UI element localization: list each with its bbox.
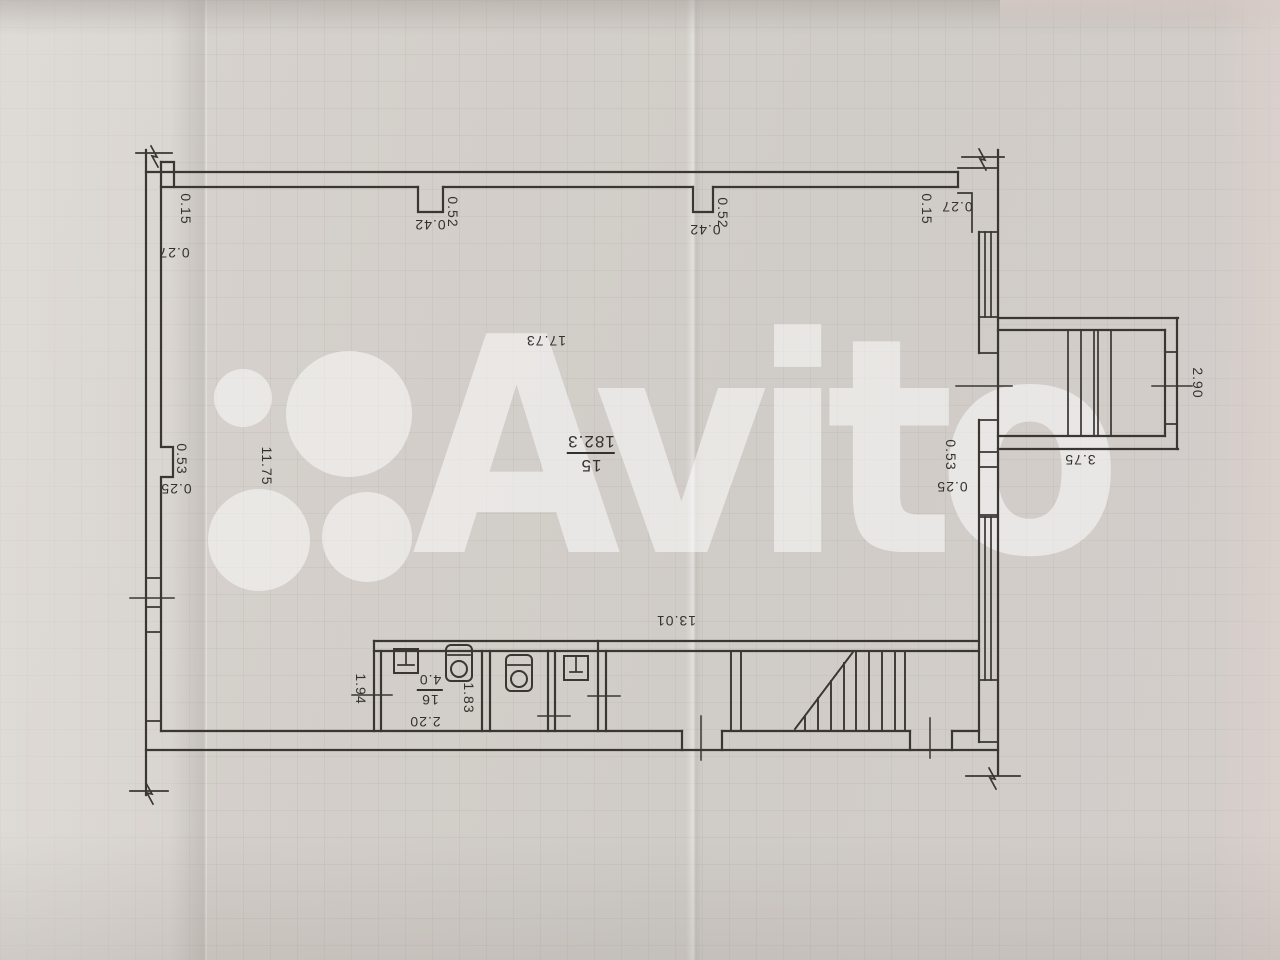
stairwell-annex — [998, 318, 1178, 449]
dim-label-wc-depth: 1.83 — [461, 682, 477, 713]
sink-icon-2 — [564, 656, 588, 680]
room-15-number: 15 — [567, 452, 615, 475]
wall-pilaster-1 — [418, 187, 443, 212]
dim-label-wc-width: 2.20 — [409, 714, 440, 730]
wall-pilaster-2 — [693, 187, 713, 212]
dimension-ticks — [130, 386, 1192, 760]
dim-label-room15-width: 17.73 — [526, 333, 566, 349]
sink-icon-1 — [394, 649, 418, 673]
room-15-area: 182.3 — [567, 431, 615, 452]
room-16-area: 4.0 — [419, 672, 441, 689]
dim-label-right-niche-d: 0.25 — [936, 479, 967, 495]
interior-staircase — [731, 651, 905, 731]
window-lower-right — [985, 517, 991, 680]
dim-label-pilaster1-d: 0.52 — [445, 196, 461, 227]
dim-label-room15-depth: 11.75 — [259, 447, 275, 486]
room-15-label: 15 182.3 — [567, 431, 615, 475]
dim-label-stairwell-d: 2.90 — [1190, 367, 1206, 398]
dim-label-left-top-h: 0.15 — [178, 193, 194, 224]
dim-label-right-top-h: 0.15 — [919, 193, 935, 224]
dim-label-pilaster2-d: 0.52 — [715, 197, 731, 228]
toilet-icon-2 — [506, 655, 532, 691]
dim-label-bottom-width: 13.01 — [656, 613, 696, 629]
left-wall-details — [146, 578, 161, 721]
dim-label-left-top-v: 0.27 — [158, 245, 189, 261]
dim-label-left-niche-d: 0.25 — [160, 481, 191, 497]
dim-label-stairwell-w: 3.75 — [1064, 452, 1095, 468]
floor-plan-drawing — [0, 0, 1280, 960]
dim-label-right-top-v: 0.27 — [941, 199, 972, 215]
dim-label-pilaster1-w: 0.42 — [414, 217, 445, 233]
dim-label-right-niche-w: 0.53 — [943, 439, 959, 470]
room-16-number: 16 — [417, 689, 443, 708]
dim-label-left-niche-w: 0.53 — [174, 443, 190, 474]
stairs-annex-steps — [1068, 330, 1111, 436]
window-upper-right — [985, 232, 991, 317]
room-16-label: 16 4.0 — [417, 672, 443, 708]
dim-label-wc-entry: 1.94 — [353, 673, 369, 704]
photographed-floor-plan: { "watermark": { "brand": "Avito" }, "pl… — [0, 0, 1280, 960]
